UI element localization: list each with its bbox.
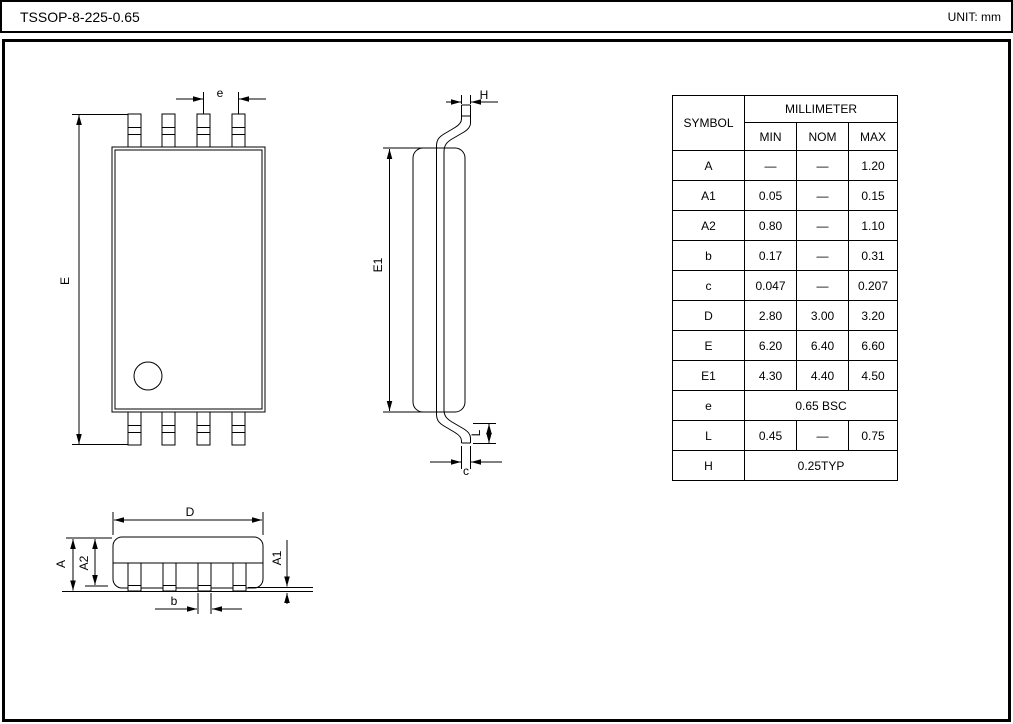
cell-max: 1.20 — [849, 151, 898, 181]
cell-symbol: E — [673, 331, 745, 361]
table-row: L 0.45 — 0.75 — [673, 421, 898, 451]
cell-nom: — — [797, 151, 849, 181]
cell-nom: — — [797, 211, 849, 241]
millimeter-header-cell: MILLIMETER — [745, 96, 898, 123]
cell-span-value: 0.25TYP — [745, 451, 898, 481]
cell-symbol: E1 — [673, 361, 745, 391]
cell-max: 0.207 — [849, 271, 898, 301]
dimension-E: E — [58, 115, 128, 445]
cell-symbol: D — [673, 301, 745, 331]
dim-label-A: A — [54, 560, 68, 568]
table-row: A1 0.05 — 0.15 — [673, 181, 898, 211]
cell-symbol: c — [673, 271, 745, 301]
cell-nom: — — [797, 271, 849, 301]
pin1-indicator — [134, 362, 162, 390]
cell-symbol: e — [673, 391, 745, 421]
cell-max: 0.15 — [849, 181, 898, 211]
min-header-cell: MIN — [745, 123, 797, 151]
dimension-table: SYMBOL MILLIMETER MIN NOM MAX A — — 1.20… — [672, 95, 898, 481]
dimension-E1: E1 — [371, 148, 437, 412]
dim-label-b: b — [171, 594, 178, 608]
nom-header-cell: NOM — [797, 123, 849, 151]
table-row: D 2.80 3.00 3.20 — [673, 301, 898, 331]
cell-min: 0.05 — [745, 181, 797, 211]
cell-nom: — — [797, 181, 849, 211]
pin-bend-lines — [128, 128, 245, 135]
cell-nom: 6.40 — [797, 331, 849, 361]
cell-symbol: H — [673, 451, 745, 481]
dim-label-E: E — [58, 277, 72, 285]
dimension-A1: A1 — [270, 540, 287, 604]
pin — [162, 114, 175, 147]
cell-max: 0.31 — [849, 241, 898, 271]
package-drawing-page: TSSOP-8-225-0.65 UNIT: mm — [0, 0, 1013, 724]
table-header-row: SYMBOL MILLIMETER — [673, 96, 898, 123]
pin — [162, 412, 175, 445]
dim-label-A1: A1 — [270, 550, 284, 565]
pin — [197, 412, 210, 445]
cell-nom: 3.00 — [797, 301, 849, 331]
max-header-cell: MAX — [849, 123, 898, 151]
dimension-e: e — [176, 86, 266, 114]
lead — [128, 563, 141, 591]
cell-min: 0.45 — [745, 421, 797, 451]
dim-label-e: e — [217, 86, 224, 100]
table-row: H 0.25TYP — [673, 451, 898, 481]
dim-label-A2: A2 — [77, 555, 91, 570]
cell-span-value: 0.65 BSC — [745, 391, 898, 421]
dim-label-c: c — [463, 464, 469, 478]
pin — [128, 412, 141, 445]
dimension-L: L — [469, 424, 496, 444]
cell-min: 2.80 — [745, 301, 797, 331]
table-row: e 0.65 BSC — [673, 391, 898, 421]
cell-nom: — — [797, 241, 849, 271]
pin-bend-lines — [128, 426, 245, 433]
cell-min: 0.047 — [745, 271, 797, 301]
body-outline — [413, 148, 465, 412]
pin — [197, 114, 210, 147]
table-row: A — — 1.20 — [673, 151, 898, 181]
side-view: H E1 L c — [371, 88, 502, 478]
cell-max: 0.75 — [849, 421, 898, 451]
cell-min: 0.80 — [745, 211, 797, 241]
dimension-b: b — [155, 593, 242, 614]
dimension-D: D — [113, 505, 263, 535]
pin — [232, 412, 245, 445]
table-row: A2 0.80 — 1.10 — [673, 211, 898, 241]
lead — [163, 563, 176, 591]
table-row: b 0.17 — 0.31 — [673, 241, 898, 271]
bottom-pins — [128, 412, 245, 445]
dimension-H: H — [446, 88, 498, 104]
cell-min: 0.17 — [745, 241, 797, 271]
cell-symbol: b — [673, 241, 745, 271]
cell-symbol: A — [673, 151, 745, 181]
cell-nom: 4.40 — [797, 361, 849, 391]
table-row: E1 4.30 4.40 4.50 — [673, 361, 898, 391]
front-view: D A A2 A1 — [54, 505, 313, 614]
cell-symbol: L — [673, 421, 745, 451]
top-view: E e — [58, 86, 266, 445]
cell-nom: — — [797, 421, 849, 451]
cell-max: 1.10 — [849, 211, 898, 241]
lead — [198, 563, 211, 591]
dim-label-D: D — [186, 505, 195, 519]
cell-min: 6.20 — [745, 331, 797, 361]
cell-max: 6.60 — [849, 331, 898, 361]
dim-label-L: L — [469, 429, 483, 436]
dimension-A2: A2 — [77, 539, 108, 586]
table-row: c 0.047 — 0.207 — [673, 271, 898, 301]
cell-symbol: A2 — [673, 211, 745, 241]
cell-max: 3.20 — [849, 301, 898, 331]
dim-label-H: H — [480, 88, 489, 102]
front-leads — [128, 563, 246, 591]
cell-min: 4.30 — [745, 361, 797, 391]
lead — [233, 563, 246, 591]
cell-max: 4.50 — [849, 361, 898, 391]
dimension-c: c — [430, 446, 502, 478]
pin — [128, 114, 141, 147]
table-row: E 6.20 6.40 6.60 — [673, 331, 898, 361]
dim-label-E1: E1 — [371, 257, 385, 272]
symbol-header-cell: SYMBOL — [673, 96, 745, 151]
cell-min: — — [745, 151, 797, 181]
cell-symbol: A1 — [673, 181, 745, 211]
top-pins — [128, 114, 245, 147]
body-outline-inner — [115, 150, 262, 409]
pin — [232, 114, 245, 147]
